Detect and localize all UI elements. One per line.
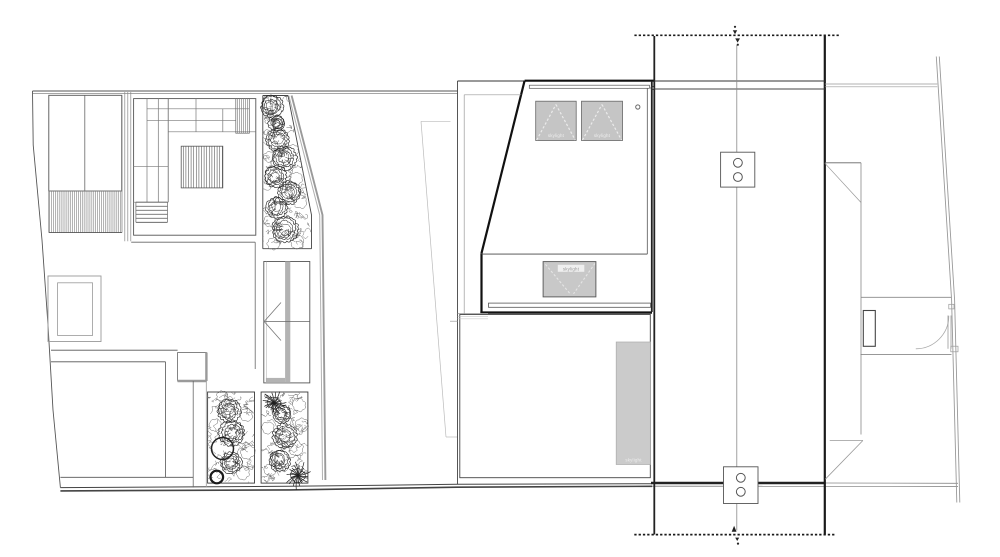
svg-text:skylight: skylight [548,133,565,138]
svg-text:skylight: skylight [625,458,642,463]
svg-text:skylight: skylight [563,267,580,272]
svg-text:skylight: skylight [594,133,611,138]
